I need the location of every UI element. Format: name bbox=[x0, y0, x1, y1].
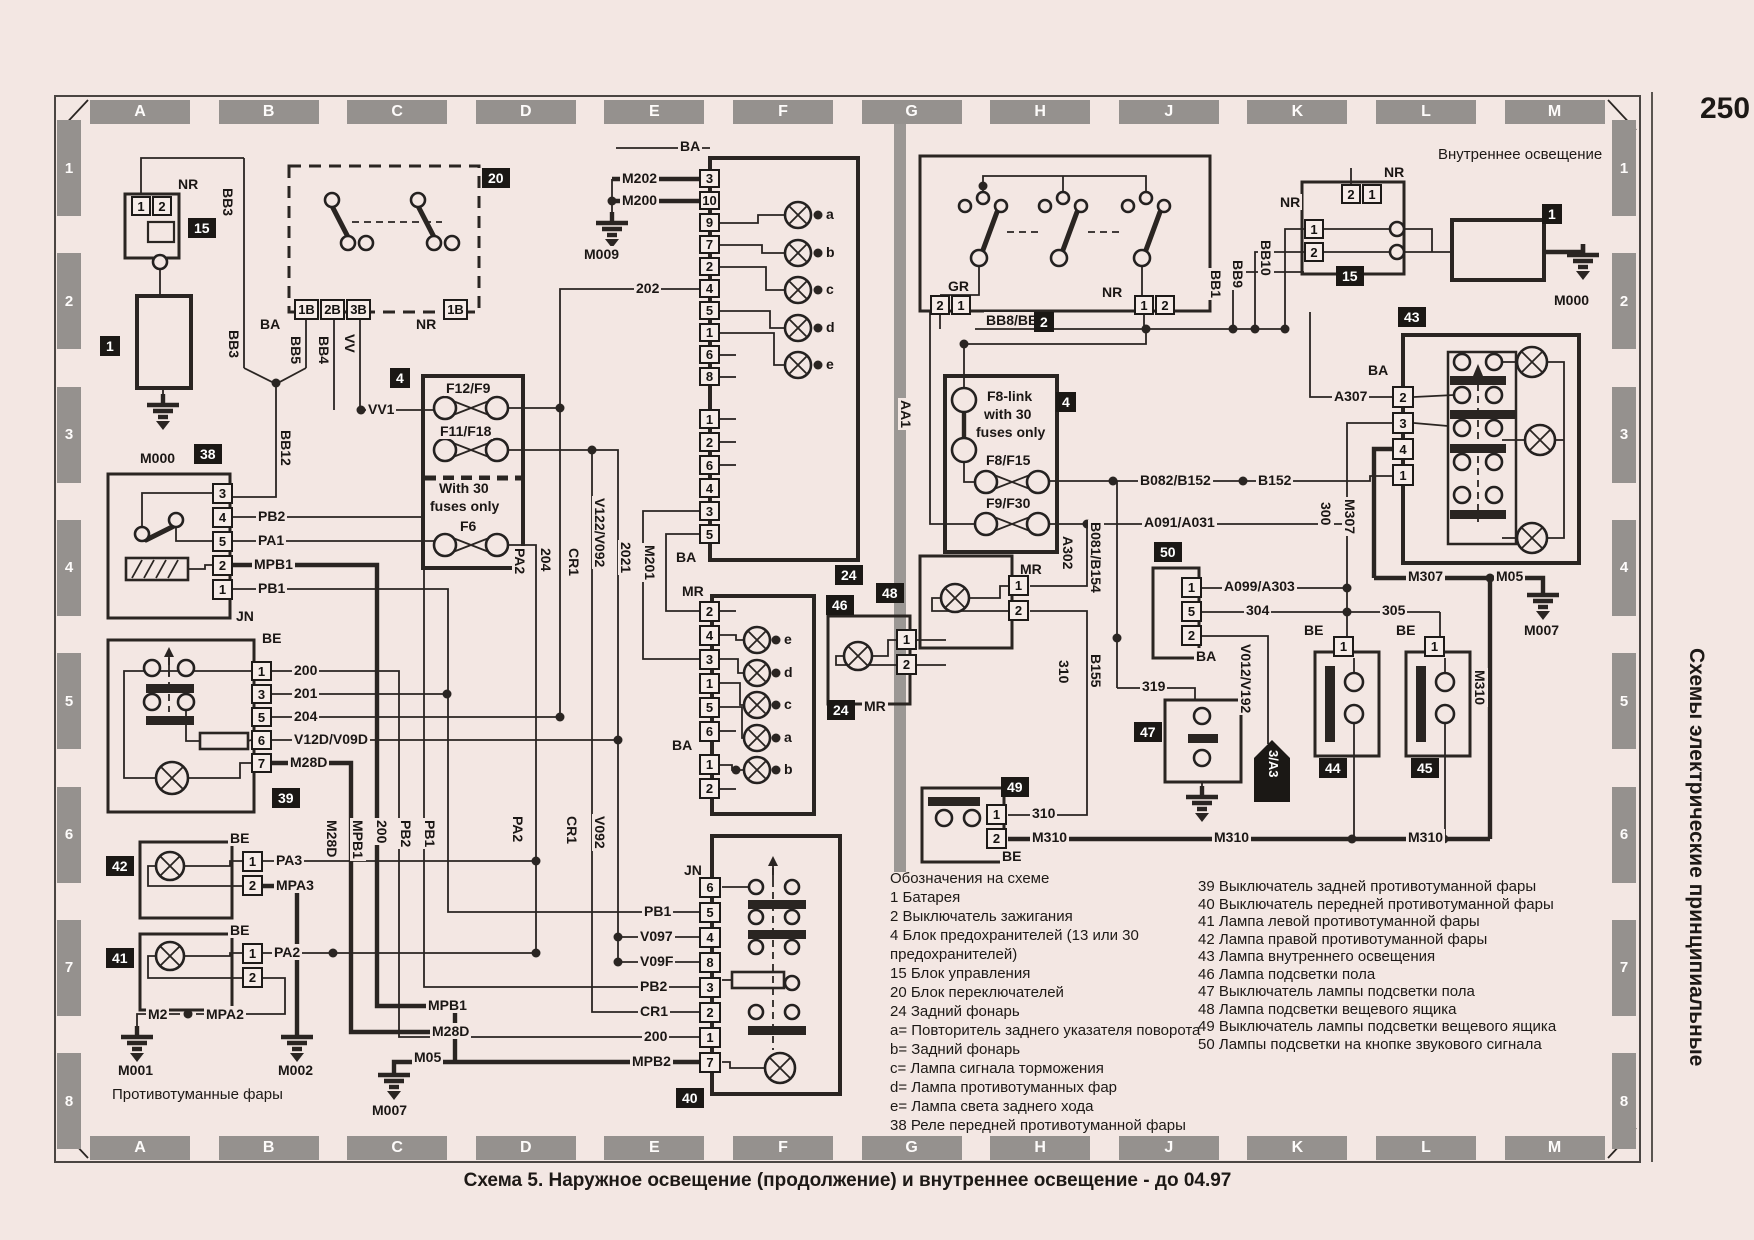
contact-icon bbox=[964, 810, 980, 826]
wire-label: BA bbox=[1194, 648, 1218, 664]
junction-dot bbox=[1281, 325, 1290, 334]
pin-cell: 2 bbox=[896, 654, 917, 675]
wire-label: MR bbox=[862, 698, 888, 714]
junction-dot bbox=[329, 949, 338, 958]
fuse-icon bbox=[434, 534, 456, 556]
pin-cell: 3 bbox=[699, 977, 721, 998]
grid-letter: L bbox=[1376, 100, 1476, 124]
wire-label: M001 bbox=[116, 1062, 155, 1078]
grid-letter: K bbox=[1247, 100, 1347, 124]
block-tag: 45 bbox=[1411, 758, 1439, 778]
legend-left-line: 4 Блок предохранителей (13 или 30 bbox=[890, 927, 1139, 944]
wire-label: M007 bbox=[370, 1102, 409, 1118]
pin-cell: 4 bbox=[699, 927, 721, 948]
wire-label: M000 bbox=[138, 450, 177, 466]
pin-cell: 2 bbox=[1392, 386, 1414, 408]
contact-icon bbox=[445, 236, 459, 250]
block-tag: 38 bbox=[194, 444, 222, 464]
block-tag: 49 bbox=[1001, 777, 1029, 797]
wire-label: NR bbox=[1278, 194, 1302, 210]
contact-icon bbox=[1454, 354, 1470, 370]
pin-cell: 1 bbox=[1134, 295, 1154, 315]
wire-label: 319 bbox=[1140, 678, 1167, 694]
wire-label: V12D/V09D bbox=[292, 731, 370, 747]
fuse-icon bbox=[486, 397, 508, 419]
pin-cell: 1 bbox=[1008, 575, 1029, 596]
wire-label: BB1 bbox=[1208, 268, 1224, 300]
wire-label: AA1 bbox=[898, 398, 914, 430]
pin-cell: 1 bbox=[242, 851, 263, 872]
junction-dot bbox=[614, 958, 623, 967]
contact-icon bbox=[1486, 420, 1502, 436]
wire-label: 300 bbox=[1318, 500, 1334, 527]
wire-label: B082/B152 bbox=[1138, 472, 1213, 488]
contact-icon bbox=[749, 1005, 763, 1019]
wire-label: BB12 bbox=[278, 428, 294, 468]
junction-dot bbox=[1239, 477, 1248, 486]
legend-right-line: 47 Выключатель лампы подсветки пола bbox=[1198, 983, 1475, 1000]
wire-label: V012/V192 bbox=[1238, 642, 1254, 715]
pin-cell: 5 bbox=[1181, 601, 1202, 622]
pin-cell: 1 bbox=[1362, 184, 1382, 204]
contact-icon bbox=[785, 976, 799, 990]
legend-right-line: 43 Лампа внутреннего освещения bbox=[1198, 948, 1435, 965]
wire-label: M310 bbox=[1030, 829, 1069, 845]
wire-label: NR bbox=[1100, 284, 1124, 300]
fuse-icon bbox=[434, 397, 456, 419]
wire-label: d bbox=[782, 664, 795, 680]
wire-label: VV1 bbox=[366, 401, 396, 417]
wire-label: e bbox=[782, 631, 794, 647]
wire-label: BA bbox=[670, 737, 694, 753]
grid-number: 1 bbox=[1612, 120, 1636, 216]
junction-dot bbox=[814, 324, 823, 333]
grid-letter: F bbox=[733, 1136, 833, 1160]
wire-label: B152 bbox=[1256, 472, 1293, 488]
wire-label: M310 bbox=[1472, 668, 1488, 707]
junction-dot bbox=[556, 404, 565, 413]
contact-icon bbox=[1194, 708, 1210, 724]
pin-cell: 1 bbox=[699, 323, 720, 342]
legend-right-line: 50 Лампы подсветки на кнопке звукового с… bbox=[1198, 1036, 1542, 1053]
wire-label: A091/A031 bbox=[1142, 514, 1217, 530]
wire-label: PA3 bbox=[274, 852, 304, 868]
pin-cell: 1B bbox=[294, 299, 319, 320]
contact-icon bbox=[169, 513, 183, 527]
pin-cell: 5 bbox=[699, 524, 720, 544]
block-tag: 42 bbox=[106, 856, 134, 876]
pin-cell: 2 bbox=[699, 1002, 721, 1023]
contact-icon bbox=[144, 694, 160, 710]
wire-label: BA bbox=[674, 549, 698, 565]
pin-cell: 5 bbox=[699, 902, 721, 923]
wire-label: 202 bbox=[634, 280, 661, 296]
pin-cell: 6 bbox=[699, 721, 720, 742]
wire-label: 200 bbox=[292, 662, 319, 678]
wire-label: PB1 bbox=[422, 818, 438, 849]
wire-label: 310 bbox=[1056, 658, 1072, 685]
pin-cell: 6 bbox=[699, 877, 721, 898]
grid-letter: K bbox=[1247, 1136, 1347, 1160]
grid-letter: B bbox=[219, 100, 319, 124]
contact-icon bbox=[785, 880, 799, 894]
wire-label: BE bbox=[1000, 848, 1023, 864]
contact-icon bbox=[1057, 192, 1069, 204]
grid-letter: G bbox=[862, 1136, 962, 1160]
legend-left-line: 38 Реле передней противотуманной фары bbox=[890, 1117, 1186, 1134]
wire-label: VV bbox=[342, 332, 358, 355]
pin-cell: 2 bbox=[212, 555, 233, 576]
wire-label: PB2 bbox=[256, 508, 287, 524]
pin-cell: 9 bbox=[699, 213, 720, 232]
pin-cell: 1 bbox=[951, 295, 971, 315]
pin-cell: 2 bbox=[699, 257, 720, 276]
junction-dot bbox=[608, 197, 617, 206]
wire-label: MPB1 bbox=[350, 818, 366, 861]
junction-dot bbox=[1251, 325, 1260, 334]
junction-dot bbox=[1343, 608, 1352, 617]
grid-letter: F bbox=[733, 100, 833, 124]
contact-icon bbox=[959, 200, 971, 212]
wire-label: with 30 bbox=[982, 406, 1033, 422]
contact-icon bbox=[785, 910, 799, 924]
wire-label: M200 bbox=[620, 192, 659, 208]
grid-number: 3 bbox=[57, 387, 81, 483]
wire-label: 310 bbox=[1030, 805, 1057, 821]
wire-label: NR bbox=[1382, 164, 1406, 180]
grid-letter: L bbox=[1376, 1136, 1476, 1160]
wire-label: 204 bbox=[538, 546, 554, 573]
wire-label: BE bbox=[1394, 622, 1417, 638]
contact-icon bbox=[749, 940, 763, 954]
junction-dot bbox=[814, 249, 823, 258]
wire-label: b bbox=[824, 244, 837, 260]
grid-number: 8 bbox=[1612, 1053, 1636, 1149]
contact-icon bbox=[785, 1005, 799, 1019]
pin-cell: 3 bbox=[699, 501, 720, 521]
contact-icon bbox=[1140, 192, 1152, 204]
wire-label: 304 bbox=[1244, 602, 1271, 618]
contact-icon bbox=[1436, 673, 1454, 691]
wire-label: BA bbox=[678, 138, 702, 154]
wire-label: MPA3 bbox=[274, 877, 316, 893]
fuse-icon bbox=[975, 513, 997, 535]
pin-cell: 2 bbox=[1008, 600, 1029, 621]
grid-number: 5 bbox=[57, 653, 81, 749]
pin-cell: 8 bbox=[699, 952, 721, 973]
wire-label: B081/B154 bbox=[1088, 520, 1104, 595]
grid-letter: D bbox=[476, 100, 576, 124]
pin-cell: 1 bbox=[212, 579, 233, 600]
wire-label: a bbox=[782, 729, 794, 745]
legend-left-line: 1 Батарея bbox=[890, 889, 960, 906]
wire-label: JN bbox=[234, 608, 256, 624]
block-tag: 1 bbox=[100, 336, 120, 356]
pin-cell: 4 bbox=[1392, 438, 1414, 460]
wire-label: CR1 bbox=[566, 546, 582, 578]
wire-label: V09F bbox=[638, 953, 675, 969]
contact-icon bbox=[1454, 420, 1470, 436]
pin-cell: 3 bbox=[212, 483, 233, 504]
junction-dot bbox=[1343, 584, 1352, 593]
legend-left-line: 15 Блок управления bbox=[890, 965, 1030, 982]
wire-label: BA bbox=[258, 316, 282, 332]
component-housing bbox=[140, 842, 232, 918]
fuse-link-icon bbox=[952, 438, 976, 462]
junction-dot bbox=[443, 690, 452, 699]
component-housing bbox=[1315, 652, 1379, 756]
pin-cell: 1 bbox=[986, 804, 1007, 825]
wire-label: BB9 bbox=[1230, 258, 1246, 290]
legend-right-line: 42 Лампа правой противотуманной фары bbox=[1198, 931, 1487, 948]
wire-label: PB2 bbox=[638, 978, 669, 994]
fuse-icon bbox=[975, 471, 997, 493]
component-housing bbox=[140, 934, 232, 1010]
legend-right-line: 39 Выключатель задней противотуманной фа… bbox=[1198, 878, 1536, 895]
wire-label: F9/F30 bbox=[984, 495, 1032, 511]
pin-cell: 1 bbox=[1333, 636, 1354, 657]
component-housing bbox=[1406, 652, 1470, 756]
wire-label: F6 bbox=[458, 518, 478, 534]
junction-dot bbox=[1142, 325, 1151, 334]
junction-dot bbox=[1229, 325, 1238, 334]
contact-icon bbox=[178, 660, 194, 676]
wire-label: M310 bbox=[1406, 829, 1445, 845]
grid-letter: A bbox=[90, 1136, 190, 1160]
section-label-fog-lamps: Противотуманные фары bbox=[112, 1086, 283, 1103]
wire-label: PA1 bbox=[256, 532, 286, 548]
legend-left-line: 2 Выключатель зажигания bbox=[890, 908, 1073, 925]
wire-label: M009 bbox=[582, 246, 621, 262]
pin-cell: 6 bbox=[251, 730, 272, 750]
block-tag: 4 bbox=[1056, 392, 1076, 412]
contact-icon bbox=[325, 193, 339, 207]
block-tag: 39 bbox=[272, 788, 300, 808]
wire-label: JN bbox=[682, 862, 704, 878]
contact-icon bbox=[1436, 705, 1454, 723]
wire-label: BE bbox=[260, 630, 283, 646]
wire-label: BB3 bbox=[226, 328, 242, 360]
wire-label: MPB2 bbox=[630, 1053, 673, 1069]
pin-cell: 5 bbox=[251, 707, 272, 727]
pin-cell: 2 bbox=[1341, 184, 1361, 204]
pin-cell: 1 bbox=[699, 409, 720, 429]
wire-label: fuses only bbox=[974, 424, 1047, 440]
wire-label: NR bbox=[176, 176, 200, 192]
legend-left-line: 24 Задний фонарь bbox=[890, 1003, 1020, 1020]
pin-cell: 7 bbox=[699, 235, 720, 254]
grid-number: 8 bbox=[57, 1053, 81, 1149]
grid-letter: E bbox=[604, 1136, 704, 1160]
wire-label: PB1 bbox=[256, 580, 287, 596]
pin-cell: 4 bbox=[212, 507, 233, 528]
junction-dot bbox=[272, 379, 281, 388]
block-tag: 41 bbox=[106, 948, 134, 968]
component-housing bbox=[1452, 220, 1544, 280]
pin-cell: 2 bbox=[699, 432, 720, 452]
pin-cell: 1 bbox=[699, 754, 720, 775]
pin-cell: 10 bbox=[699, 191, 720, 210]
pin-cell: 4 bbox=[699, 625, 720, 646]
grid-letter: H bbox=[990, 1136, 1090, 1160]
contact-icon bbox=[1390, 245, 1404, 259]
wire-label: A099/A303 bbox=[1222, 578, 1297, 594]
pin-cell: 1 bbox=[1424, 636, 1445, 657]
pin-cell: 4 bbox=[699, 478, 720, 498]
junction-dot bbox=[184, 1010, 193, 1019]
wire-label: M007 bbox=[1522, 622, 1561, 638]
pin-cell: 1 bbox=[699, 673, 720, 694]
wire-label: PA2 bbox=[272, 944, 302, 960]
contact-icon bbox=[411, 193, 425, 207]
route-arrow-label: 3/A3 bbox=[1265, 748, 1281, 779]
pin-cell: 1 bbox=[251, 661, 272, 681]
wire-label: CR1 bbox=[564, 814, 580, 846]
wire-label: M28D bbox=[288, 754, 329, 770]
junction-dot bbox=[814, 361, 823, 370]
wire-label: M002 bbox=[276, 1062, 315, 1078]
contact-icon bbox=[1345, 673, 1363, 691]
junction-dot bbox=[960, 340, 969, 349]
contact-icon bbox=[1122, 200, 1134, 212]
contact-icon bbox=[178, 694, 194, 710]
wire-label: BA bbox=[1366, 362, 1390, 378]
block-tag: 48 bbox=[876, 583, 904, 603]
grid-number: 7 bbox=[57, 920, 81, 1016]
contact-icon bbox=[1039, 200, 1051, 212]
wire-label: BB4 bbox=[316, 334, 332, 366]
junction-dot bbox=[814, 286, 823, 295]
pin-cell: 2 bbox=[699, 778, 720, 799]
pin-cell: 2B bbox=[320, 299, 345, 320]
junction-dot bbox=[532, 857, 541, 866]
block-tag: 40 bbox=[676, 1088, 704, 1108]
junction-dot bbox=[814, 211, 823, 220]
grid-number: 4 bbox=[57, 520, 81, 616]
wire-label: c bbox=[824, 281, 836, 297]
grid-letter: H bbox=[990, 100, 1090, 124]
contact-icon bbox=[785, 940, 799, 954]
wire-label: PB2 bbox=[398, 818, 414, 849]
wire-label: 204 bbox=[292, 708, 319, 724]
pin-cell: 3B bbox=[346, 299, 371, 320]
legend-left-line: 20 Блок переключателей bbox=[890, 984, 1064, 1001]
pin-cell: 1 bbox=[896, 629, 917, 650]
wire-label: F11/F18 bbox=[438, 423, 493, 439]
wire-label: M28D bbox=[324, 818, 340, 859]
wire-label: M310 bbox=[1212, 829, 1251, 845]
junction-dot bbox=[556, 713, 565, 722]
wire-label: 200 bbox=[642, 1028, 669, 1044]
pin-cell: 2 bbox=[1181, 625, 1202, 646]
scanned-wiring-diagram-page: 250 x Схемы электрические принципиальные… bbox=[0, 0, 1754, 1240]
grid-letter: J bbox=[1119, 1136, 1219, 1160]
grid-letter: C bbox=[347, 1136, 447, 1160]
legend-left-line: b= Задний фонарь bbox=[890, 1041, 1020, 1058]
wire-label: M307 bbox=[1406, 568, 1445, 584]
wire-label: V122/V092 bbox=[592, 496, 608, 569]
pin-cell: 5 bbox=[699, 697, 720, 718]
junction-dot bbox=[772, 701, 781, 710]
fuse-icon bbox=[486, 439, 508, 461]
junction-dot bbox=[772, 766, 781, 775]
fuse-icon bbox=[486, 534, 508, 556]
contact-icon bbox=[359, 236, 373, 250]
pin-cell: 2 bbox=[152, 196, 172, 216]
junction-dot bbox=[772, 669, 781, 678]
fuse-icon bbox=[1027, 471, 1049, 493]
legend-left-line: предохранителей) bbox=[890, 946, 1017, 963]
pin-cell: 2 bbox=[242, 967, 263, 988]
side-title: Схемы электрические принципиальные bbox=[1684, 648, 1708, 1066]
wire-label: M201 bbox=[642, 543, 658, 582]
contact-icon bbox=[749, 880, 763, 894]
block-tag: 46 bbox=[826, 595, 854, 615]
pin-cell: 4 bbox=[699, 279, 720, 298]
wire-label: F8-link bbox=[985, 388, 1034, 404]
contact-icon bbox=[427, 236, 441, 250]
contact-icon bbox=[1454, 454, 1470, 470]
grid-letter: B bbox=[219, 1136, 319, 1160]
pin-cell: 1 bbox=[1392, 464, 1414, 486]
grid-letter: J bbox=[1119, 100, 1219, 124]
grid-letter: C bbox=[347, 100, 447, 124]
wire-label: CR1 bbox=[638, 1003, 670, 1019]
wire-label: BB5 bbox=[288, 334, 304, 366]
pin-cell: 3 bbox=[1392, 412, 1414, 434]
grid-number: 6 bbox=[1612, 787, 1636, 883]
junction-dot bbox=[357, 406, 366, 415]
contact-icon bbox=[1390, 222, 1404, 236]
wire-label: e bbox=[824, 356, 836, 372]
block-tag: 15 bbox=[1336, 266, 1364, 286]
junction-dot bbox=[588, 446, 597, 455]
pin-cell: 5 bbox=[212, 531, 233, 552]
contact-icon bbox=[1454, 487, 1470, 503]
pin-cell: 5 bbox=[699, 301, 720, 320]
contact-icon bbox=[153, 255, 167, 269]
pin-cell: 2 bbox=[242, 875, 263, 896]
pin-cell: 1 bbox=[1181, 577, 1202, 598]
block-tag: 43 bbox=[1398, 307, 1426, 327]
legend-right-line: 49 Выключатель лампы подсветки вещевого … bbox=[1198, 1018, 1556, 1035]
block-tag: 4 bbox=[390, 368, 410, 388]
contact-icon bbox=[1486, 354, 1502, 370]
wire-label: MPB1 bbox=[252, 556, 295, 572]
component-housing bbox=[710, 158, 858, 560]
wire-label: M202 bbox=[620, 170, 659, 186]
block-tag: 44 bbox=[1319, 758, 1347, 778]
grid-letter: D bbox=[476, 1136, 576, 1160]
legend-left-line: e= Лампа света заднего хода bbox=[890, 1098, 1093, 1115]
wire-label: BB10 bbox=[1258, 238, 1274, 278]
grid-number: 3 bbox=[1612, 387, 1636, 483]
wire-label: a bbox=[824, 206, 836, 222]
fuse-icon bbox=[434, 439, 456, 461]
wire-label: MR bbox=[680, 583, 706, 599]
pin-cell: 3 bbox=[699, 169, 720, 188]
wire-label: With 30 bbox=[437, 480, 491, 496]
junction-dot bbox=[979, 182, 988, 191]
wire-label: NR bbox=[414, 316, 438, 332]
grid-letter: G bbox=[862, 100, 962, 124]
junction-dot bbox=[1113, 634, 1122, 643]
wire-label: 2021 bbox=[618, 540, 634, 575]
component-housing bbox=[137, 296, 191, 388]
wire-label: A307 bbox=[1332, 388, 1369, 404]
contact-icon bbox=[749, 910, 763, 924]
wire-label: BE bbox=[228, 830, 251, 846]
